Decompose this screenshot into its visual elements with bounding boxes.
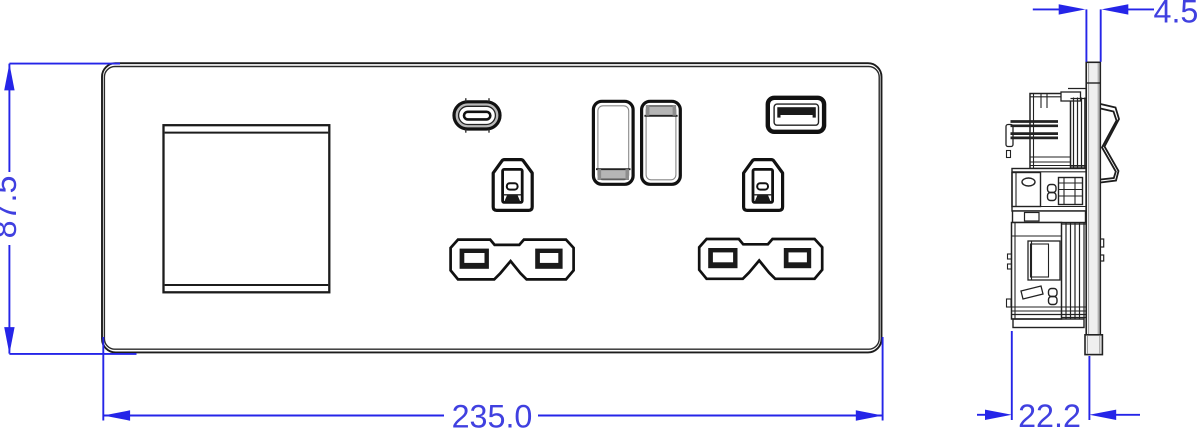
svg-text:22.2: 22.2 xyxy=(1018,398,1081,430)
svg-text:87.5: 87.5 xyxy=(0,176,23,239)
svg-text:235.0: 235.0 xyxy=(452,399,533,430)
svg-text:4.5: 4.5 xyxy=(1154,0,1199,30)
